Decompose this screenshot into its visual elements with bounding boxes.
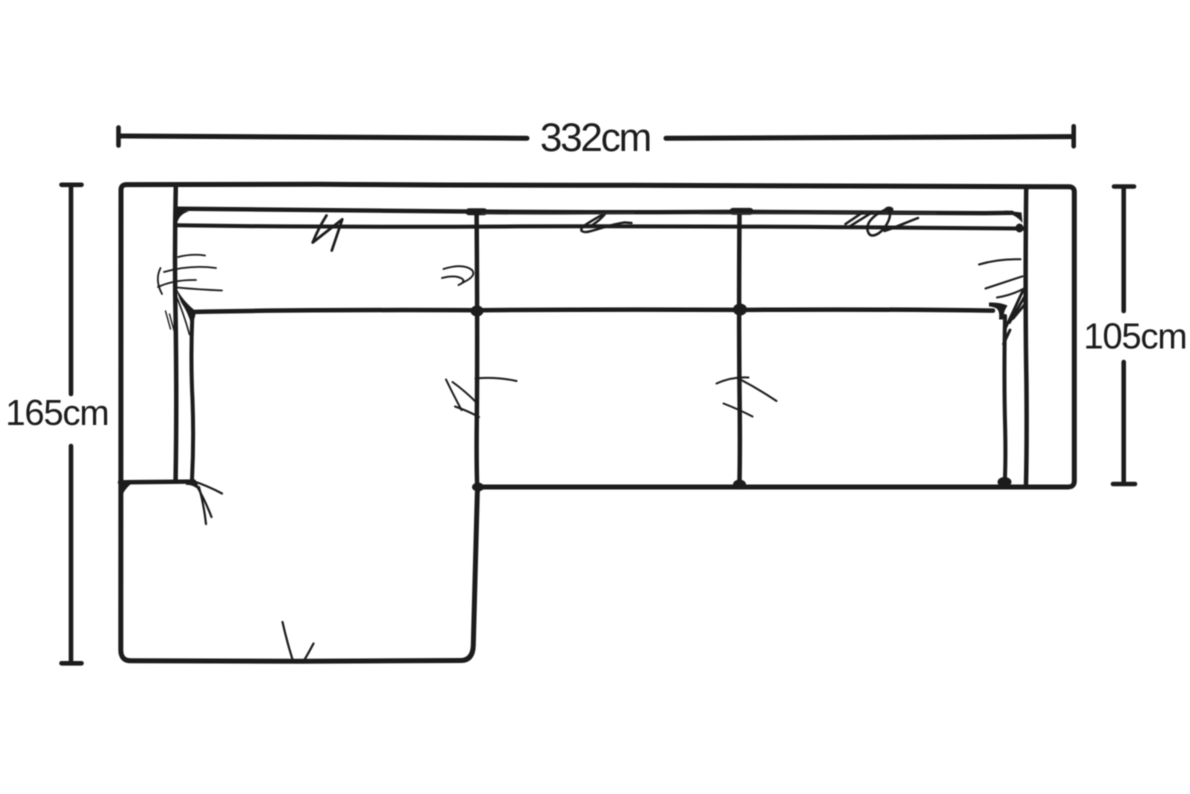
svg-text:332cm: 332cm bbox=[540, 116, 650, 160]
svg-text:105cm: 105cm bbox=[1083, 316, 1186, 357]
svg-text:165cm: 165cm bbox=[5, 392, 108, 433]
